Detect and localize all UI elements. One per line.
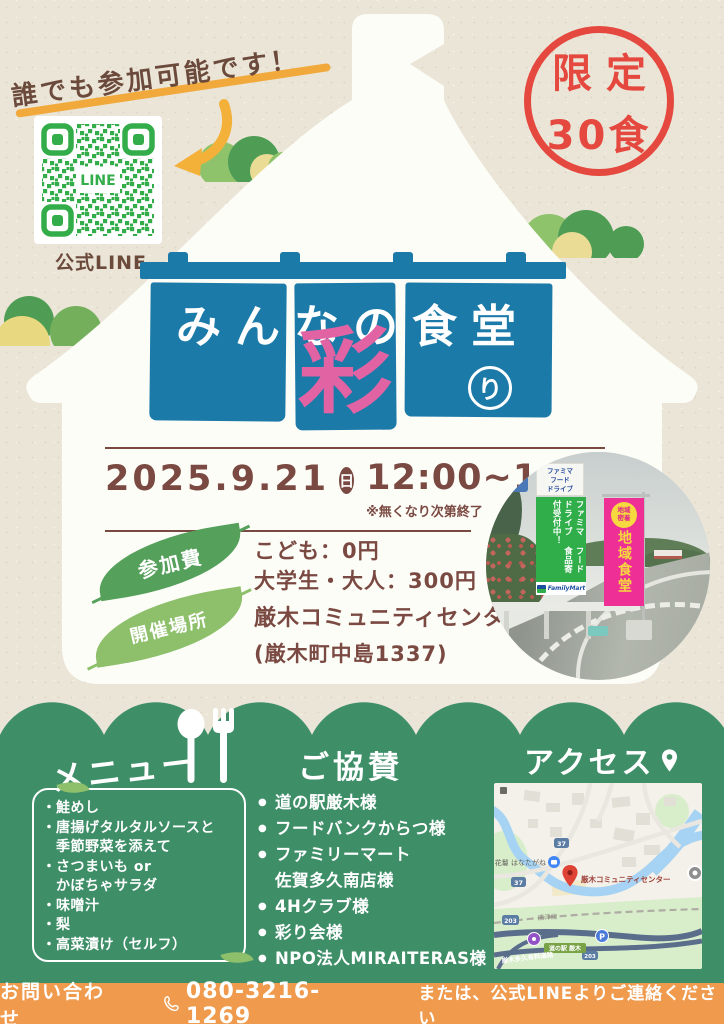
- menu-list: ・鮭めし ・唐揚げタルタルソースと 季節野菜を添えて ・さつまいも or かぼち…: [32, 788, 246, 962]
- fooddrive-sign: ファミマ フード ドライブ: [536, 463, 584, 496]
- menu-item: ・さつまいも or: [42, 858, 236, 878]
- divider: [105, 530, 471, 532]
- map-poi-label: 花鬘 はなたがね: [495, 858, 546, 867]
- sponsor-item: ●フードバンクからつ様: [258, 816, 488, 842]
- badge-line: 密着: [611, 515, 637, 523]
- banner-crossbar: [602, 494, 650, 497]
- sponsor-item: ●ファミリーマート: [258, 842, 488, 868]
- photo-building: [654, 550, 682, 559]
- banner-base: [626, 620, 652, 640]
- svg-text:203: 203: [584, 954, 596, 960]
- spoon-fork-icon: [176, 708, 240, 784]
- phone-number: 080-3216-1269: [186, 979, 379, 1024]
- railway-label: 唐津線: [538, 912, 559, 922]
- qr-center-label: LINE: [80, 173, 115, 189]
- svg-text:道の駅 厳木: 道の駅 厳木: [549, 945, 582, 953]
- menu-item: ・味噌汁: [42, 897, 236, 917]
- access-map: 37 37 203 203 花鬘 はなたがね 厳木コミュニティセンター 唐津線 …: [494, 783, 702, 969]
- road-sign: [488, 464, 528, 492]
- sponsor-item: ●NPO法人MIRAITERAS様: [258, 946, 488, 972]
- pink-banner-text: 地域食堂: [614, 530, 634, 596]
- fee-line2: 大学生・大人：300円: [254, 566, 477, 596]
- menu-item: ・高菜漬け（セルフ）: [42, 936, 236, 956]
- sponsor-item: ●道の駅厳木様: [258, 790, 488, 816]
- sign-line: フード: [537, 476, 583, 485]
- access-heading: アクセス: [524, 738, 679, 782]
- location-pin-icon: [660, 748, 679, 773]
- phone-icon: [162, 994, 181, 1014]
- banner-column: ファミマ: [574, 500, 584, 536]
- fee-line1: こども：0円: [254, 536, 477, 566]
- sponsor-item: ●4Hクラブ様: [258, 894, 488, 920]
- sponsor-item: ●彩り会様: [258, 920, 488, 946]
- pink-banner: 地域 密着 地域食堂: [604, 498, 644, 606]
- stamp-line2: 30食: [547, 103, 652, 161]
- sponsor-item: 佐賀多久南店様: [258, 868, 488, 894]
- line-qr-code: LINE: [34, 116, 162, 244]
- footer-bar: お問い合わせ 080-3216-1269 または、公式LINEよりご連絡ください: [0, 983, 724, 1024]
- svg-text:37: 37: [514, 879, 523, 887]
- familymart-logo: [537, 585, 546, 593]
- photo-box: [588, 626, 608, 636]
- guardrail-post: [544, 609, 549, 639]
- guardrail-post: [504, 609, 509, 639]
- access-heading-text: アクセス: [524, 738, 655, 782]
- limited-stamp: 限定 30食: [524, 26, 674, 176]
- svg-text:37: 37: [557, 840, 566, 848]
- event-title-suffix: り: [468, 366, 512, 410]
- menu-item: 季節野菜を添えて: [42, 838, 236, 858]
- contact-note: または、公式LINEよりご連絡ください: [418, 979, 724, 1024]
- arrow-icon: [172, 98, 236, 180]
- fee-label: 参加費: [135, 540, 206, 583]
- sign-line: ファミマ: [537, 467, 583, 476]
- sponsors-list: ●道の駅厳木様 ●フードバンクからつ様 ●ファミリーマート 佐賀多久南店様 ●4…: [258, 790, 488, 972]
- green-banner: ファミマ フードドライブ 食品寄付受付中！ FamilyMart: [536, 497, 586, 595]
- sponsors-heading: ご協賛: [298, 742, 403, 787]
- menu-item: ・唐揚げタルタルソースと: [42, 819, 236, 839]
- sign-line: ドライブ: [537, 485, 583, 494]
- stamp-line1: 限定: [552, 41, 660, 99]
- event-date: 2025.9.21: [105, 459, 329, 499]
- qr-pattern: LINE: [40, 122, 156, 238]
- brand-text: FamilyMart: [548, 585, 586, 592]
- destination-label: 厳木コミュニティセンター: [581, 874, 671, 884]
- menu-item: かぼちゃサラダ: [42, 877, 236, 897]
- svg-text:203: 203: [504, 918, 517, 925]
- event-title-accent: 彩: [294, 326, 396, 420]
- noren-curtain: みんなの食堂 彩 り: [138, 250, 570, 435]
- fee-text: こども：0円 大学生・大人：300円: [254, 536, 477, 596]
- noren-rod: [140, 262, 566, 279]
- menu-item: ・鮭めし: [42, 799, 236, 819]
- divider: [105, 447, 605, 449]
- pink-banner-badge: 地域 密着: [611, 502, 637, 528]
- svg-text:P: P: [599, 933, 605, 942]
- menu-item: ・梨: [42, 916, 236, 936]
- contact-phone: 080-3216-1269: [162, 979, 379, 1024]
- familymart-strip: FamilyMart: [536, 582, 586, 595]
- location-photo: ファミマ フード ドライブ ファミマ フードドライブ 食品寄付受付中！ Fami…: [486, 452, 710, 680]
- flyer-poster: 誰でも参加可能です！: [0, 0, 724, 1024]
- weekday-badge: 日: [339, 467, 354, 494]
- contact-label: お問い合わせ: [0, 977, 122, 1024]
